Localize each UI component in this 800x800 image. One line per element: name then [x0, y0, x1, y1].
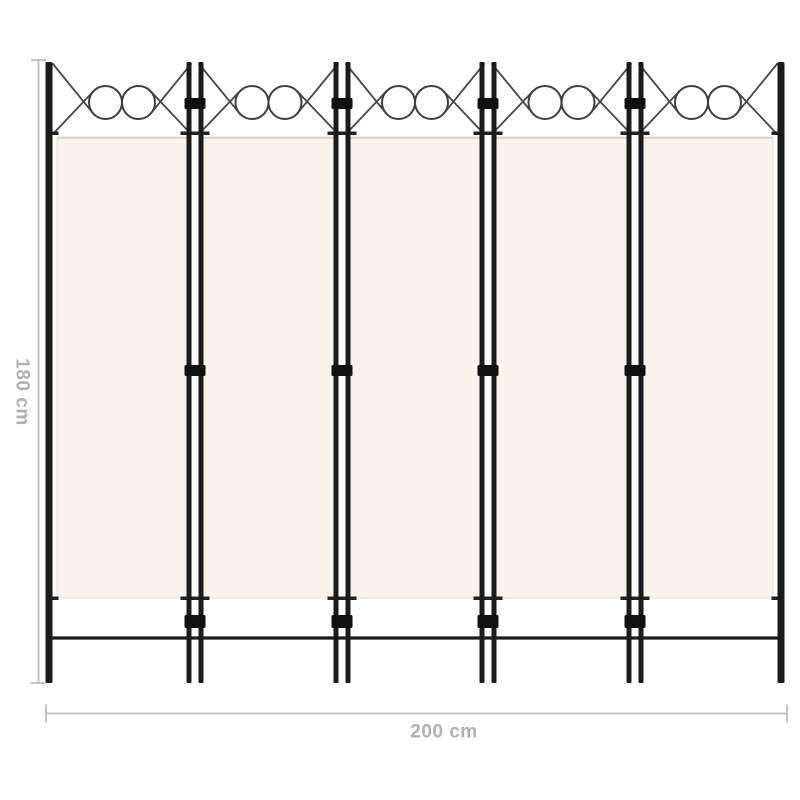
decor-circle [529, 86, 562, 119]
frame-connector [474, 597, 503, 601]
decor-wire [199, 91, 240, 134]
hinge-bracket [478, 615, 499, 628]
hinge-bracket [185, 615, 206, 628]
decor-wire [443, 91, 484, 134]
fabric-panel [57, 137, 187, 598]
hinge-bracket [478, 365, 499, 376]
hinge-bracket [625, 98, 646, 109]
frame-connector [328, 597, 357, 601]
decor-wire [53, 64, 94, 114]
frame-connector [621, 132, 650, 136]
hinge-bracket [185, 365, 206, 376]
decor-wire [150, 91, 191, 134]
room-divider-figure: 180 cm 200 cm [0, 0, 800, 800]
frame-connector [328, 132, 357, 136]
frame-connector [53, 132, 59, 136]
hinge-bracket [478, 98, 499, 109]
decor-circle [122, 86, 155, 119]
frame-pole [46, 62, 53, 683]
decor-circle [415, 86, 448, 119]
decor-circle [236, 86, 269, 119]
fabric-panel [643, 137, 773, 598]
hinge-bracket [332, 365, 353, 376]
product-dimension-diagram: 180 cm 200 cm [0, 0, 800, 800]
hinge-bracket [185, 98, 206, 109]
frame-pole [778, 62, 785, 683]
decor-wire [590, 91, 631, 134]
hinge-bracket [332, 615, 353, 628]
frame-connector [772, 132, 778, 136]
hinge-bracket [332, 98, 353, 109]
decor-wire [297, 91, 338, 134]
width-dimension-label: 200 cm [410, 722, 477, 743]
frame-connector [474, 132, 503, 136]
decor-circle [562, 86, 595, 119]
decor-wire [736, 91, 777, 134]
fabric-panel [203, 137, 334, 598]
height-dimension-label: 180 cm [12, 358, 33, 425]
fabric-panels [57, 137, 773, 598]
decor-wire [492, 91, 533, 134]
frame-connector [772, 597, 778, 601]
decor-wire [736, 64, 777, 114]
frame-connector [53, 597, 59, 601]
frame-connector [621, 597, 650, 601]
decor-circle [269, 86, 302, 119]
decor-circle [89, 86, 122, 119]
hinge-bracket [625, 365, 646, 376]
fabric-panel [496, 137, 627, 598]
width-dimension [46, 705, 787, 723]
fabric-panel [350, 137, 480, 598]
decor-circle [382, 86, 415, 119]
decor-circle [675, 86, 708, 119]
frame-connector [181, 132, 210, 136]
decor-wire [346, 91, 387, 134]
frame-connector [181, 597, 210, 601]
hinge-bracket [625, 615, 646, 628]
decor-wire [639, 91, 680, 134]
decor-circle [708, 86, 741, 119]
decor-wire [53, 91, 94, 134]
